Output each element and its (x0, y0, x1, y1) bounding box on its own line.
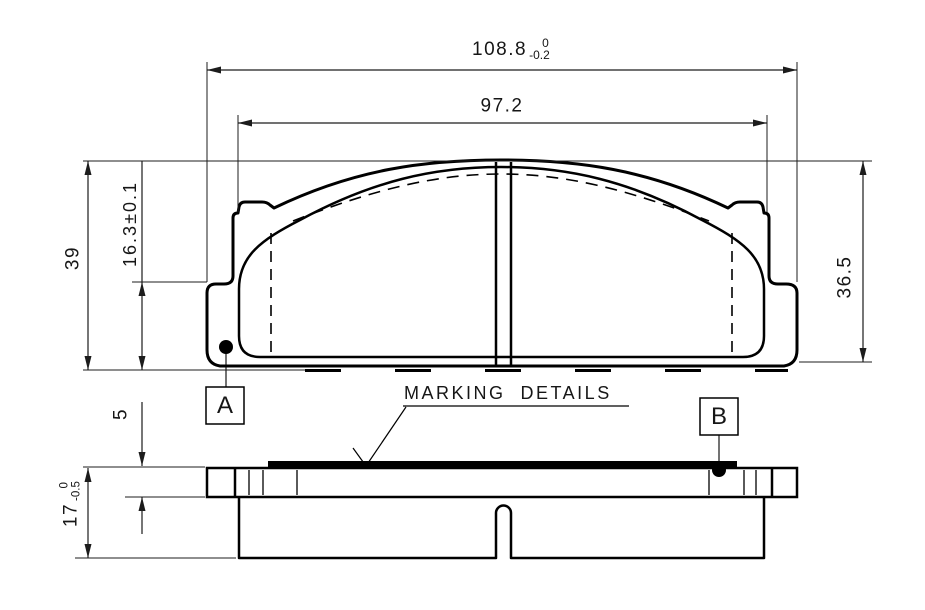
marking-strip (268, 461, 737, 468)
dim-friction-width-label: 97.2 (481, 97, 524, 116)
dim-right-height (860, 161, 867, 362)
dim-lower-height-label: 16.3±0.1 (121, 181, 139, 267)
friction-side-outline (239, 497, 764, 558)
datum-point-a (219, 340, 233, 354)
dim-friction-width (238, 120, 767, 127)
datum-point-b (712, 463, 726, 477)
backplate-outline (207, 160, 797, 366)
marking-details-note: MARKING DETAILS (404, 384, 612, 402)
datum-b-label: B (711, 405, 727, 429)
dim-overall-width-tolerance: 0 -0.2 (529, 37, 550, 61)
friction-material-outline (239, 167, 764, 357)
dim-overall-width-label: 108.8 0 -0.2 (454, 21, 550, 77)
dim-overall-width-value: 108.8 (472, 40, 527, 59)
drawing-linework (0, 0, 925, 610)
dim-total-thickness-value: 17 (62, 503, 81, 527)
dim-plate-thickness-label: 5 (112, 408, 131, 420)
rivet-ticks (249, 470, 756, 495)
dim-right-height-label: 36.5 (836, 256, 855, 299)
dimension-linework (75, 62, 872, 558)
extension-lines (75, 62, 872, 558)
dim-total-thickness-tolerance: 0 -0.5 (60, 481, 83, 501)
technical-drawing-canvas: 108.8 0 -0.2 97.2 39 16.3±0.1 36.5 5 17 … (0, 0, 925, 610)
side-view (207, 398, 797, 558)
dim-overall-height-label: 39 (64, 246, 83, 270)
datum-a-label: A (217, 394, 233, 418)
center-slot (496, 162, 511, 365)
dim-plate-thickness (139, 402, 146, 534)
dim-total-thickness-label: 17 0 -0.5 (44, 481, 99, 545)
chamfer-dashed-arch (293, 174, 709, 221)
marking-note-leader (353, 406, 629, 466)
dim-overall-height (85, 161, 92, 370)
